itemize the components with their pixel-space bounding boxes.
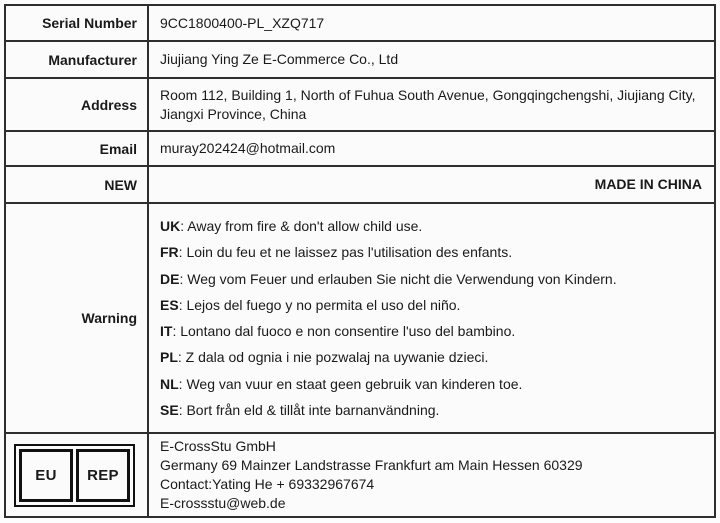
warning-row: Warning UK: Away from fire & don't allow… <box>6 202 714 432</box>
warning-line-it: IT: Lontano dal fuoco e non consentire l… <box>160 323 702 339</box>
email-row: Email muray202424@hotmail.com <box>6 130 714 165</box>
warning-line-fr: FR: Loin du feu et ne laissez pas l'util… <box>160 244 702 260</box>
eu-rep-details: E-CrossStu GmbH Germany 69 Mainzer Lands… <box>149 434 714 516</box>
warning-line-uk: UK: Away from fire & don't allow child u… <box>160 218 702 234</box>
manufacturer-value: Jiujiang Ying Ze E-Commerce Co., Ltd <box>149 42 714 77</box>
eu-box: EU <box>19 449 73 502</box>
address-label: Address <box>6 79 149 130</box>
warning-list: UK: Away from fire & don't allow child u… <box>149 204 714 432</box>
warning-line-es: ES: Lejos del fuego y no permita el uso … <box>160 297 702 313</box>
eu-rep-email: E-crossstu@web.de <box>160 494 285 513</box>
eu-rep-company: E-CrossStu GmbH <box>160 437 276 456</box>
warning-line-nl: NL: Weg van vuur en staat geen gebruik v… <box>160 376 702 392</box>
manufacturer-label: Manufacturer <box>6 42 149 77</box>
address-value: Room 112, Building 1, North of Fuhua Sou… <box>149 79 714 130</box>
manufacturer-row: Manufacturer Jiujiang Ying Ze E-Commerce… <box>6 40 714 77</box>
serial-number-value: 9CC1800400-PL_XZQ717 <box>149 6 714 40</box>
origin-row: NEW MADE IN CHINA <box>6 165 714 202</box>
made-in-china-text: MADE IN CHINA <box>149 167 714 202</box>
serial-number-row: Serial Number 9CC1800400-PL_XZQ717 <box>6 6 714 40</box>
address-row: Address Room 112, Building 1, North of F… <box>6 77 714 130</box>
warning-label: Warning <box>6 204 149 432</box>
eu-rep-row: EU REP E-CrossStu GmbH Germany 69 Mainze… <box>6 432 714 516</box>
serial-number-label: Serial Number <box>6 6 149 40</box>
eu-rep-contact: Contact:Yating He + 69332967674 <box>160 475 374 494</box>
warning-line-pl: PL: Z dala od ognia i nie pozwalaj na uy… <box>160 349 702 365</box>
eu-rep-address: Germany 69 Mainzer Landstrasse Frankfurt… <box>160 456 583 475</box>
warning-line-de: DE: Weg vom Feuer und erlauben Sie nicht… <box>160 271 702 287</box>
rep-box: REP <box>76 449 130 502</box>
eu-rep-symbol: EU REP <box>14 444 135 507</box>
product-label-table: Serial Number 9CC1800400-PL_XZQ717 Manuf… <box>4 4 716 518</box>
eu-rep-symbol-cell: EU REP <box>6 434 149 516</box>
warning-line-se: SE: Bort från eld & tillåt inte barnanvä… <box>160 402 702 418</box>
email-label: Email <box>6 132 149 165</box>
email-value: muray202424@hotmail.com <box>149 132 714 165</box>
new-label: NEW <box>6 167 149 202</box>
